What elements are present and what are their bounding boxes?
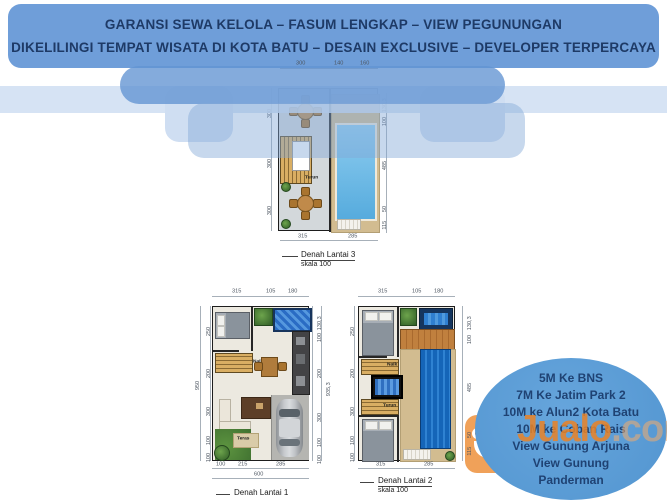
dim-label: 160 xyxy=(360,60,369,66)
kitchen-appliance xyxy=(296,376,305,386)
dim-label: 285 xyxy=(276,461,285,467)
dim-label: 115 xyxy=(467,447,473,456)
bush xyxy=(214,445,230,461)
dim-label: 200 xyxy=(350,369,356,378)
dining-table xyxy=(261,357,278,377)
pillow xyxy=(217,315,225,326)
dim-label: 180 xyxy=(434,288,443,294)
dim-label: 950 xyxy=(195,381,201,390)
banner-line-1: GARANSI SEWA KELOLA – FASUM LENGKAP – VI… xyxy=(8,13,659,36)
terrace-table-set xyxy=(291,189,319,217)
dimension-line xyxy=(212,296,309,297)
blanket xyxy=(363,323,393,355)
fish-pond xyxy=(273,308,312,332)
rug xyxy=(241,397,271,419)
stairs xyxy=(215,353,253,373)
dim-label: 115 xyxy=(382,221,388,230)
pool-lounger xyxy=(403,449,431,460)
medium-blue-band xyxy=(120,66,505,104)
callout-line: Panderman xyxy=(538,472,603,489)
wall xyxy=(359,356,387,358)
dim-label: 105 xyxy=(266,288,275,294)
scale-tick xyxy=(282,256,298,257)
dimension-line xyxy=(358,296,455,297)
dim-label: 600 xyxy=(254,471,263,477)
dim-label: 250 xyxy=(350,327,356,336)
callout-line: View Gunung xyxy=(533,455,609,472)
pillow xyxy=(365,421,378,430)
floorplan-lantai-2: 315 105 180 250 200 300 100 100 130,3 10… xyxy=(346,286,506,500)
scale-tick xyxy=(360,482,374,483)
callout-line: 7M Ke Jatim Park 2 xyxy=(516,387,625,404)
dim-label: 100 xyxy=(350,453,356,462)
car-rear-window xyxy=(279,439,300,446)
dim-label: 100 xyxy=(467,335,473,344)
plant xyxy=(281,182,291,192)
aquarium-water xyxy=(375,379,399,395)
banner-line-2: DIKELILINGI TEMPAT WISATA DI KOTA BATU –… xyxy=(8,36,659,59)
pillow xyxy=(379,312,392,321)
blanket xyxy=(363,431,393,461)
car xyxy=(276,399,303,457)
wall xyxy=(397,307,399,357)
dim-label: 100 xyxy=(317,455,323,464)
blanket xyxy=(226,313,249,338)
translucent-blue-band xyxy=(188,103,525,158)
round-table xyxy=(297,195,314,212)
pool-lounger xyxy=(337,219,361,230)
scale-tick xyxy=(216,494,230,495)
dim-label: 50 xyxy=(467,432,473,438)
dim-label: 300 xyxy=(296,60,305,66)
bed xyxy=(362,310,394,356)
listing-image: GARANSI SEWA KELOLA – FASUM LENGKAP – VI… xyxy=(0,0,667,500)
plan-title: Denah Lantai 1 xyxy=(234,488,288,497)
chair xyxy=(278,362,287,371)
dim-label: 130,3 xyxy=(317,316,323,330)
dim-label: 300 xyxy=(206,407,212,416)
dim-label: 215 xyxy=(238,461,247,467)
plan-scale: skala 100 xyxy=(301,261,331,268)
plant xyxy=(281,219,291,229)
plan-title: Denah Lantai 2 xyxy=(378,476,432,487)
stair-direction-label: Turun xyxy=(305,175,318,180)
dim-label: 180 xyxy=(288,288,297,294)
pillow xyxy=(217,326,225,337)
dimension-line xyxy=(462,306,463,461)
swimming-pool xyxy=(420,349,451,449)
dim-label: 485 xyxy=(382,161,388,170)
bed xyxy=(215,312,250,339)
dim-label: 100 xyxy=(317,438,323,447)
plan-title: Denah Lantai 3 xyxy=(301,250,355,261)
dim-label: 285 xyxy=(348,233,357,239)
dim-label: 315 xyxy=(232,288,241,294)
plant xyxy=(445,451,455,461)
dim-label: 200 xyxy=(206,369,212,378)
dim-label: 140 xyxy=(334,60,343,66)
stair-up-label: Naik xyxy=(387,362,397,367)
wall xyxy=(359,415,399,417)
kitchen-sink xyxy=(296,337,305,345)
car-roof xyxy=(279,419,300,437)
plan-body-lantai-1: Naik Teras xyxy=(212,306,309,461)
aquarium xyxy=(371,375,403,399)
bed xyxy=(362,419,394,462)
chair xyxy=(301,211,310,220)
dim-label: 315 xyxy=(298,233,307,239)
stove xyxy=(296,354,305,364)
chair xyxy=(254,362,263,371)
watermark-tld: .com xyxy=(611,408,667,450)
dim-label: 300 xyxy=(267,159,273,168)
dim-label: 105 xyxy=(412,288,421,294)
jacuzzi xyxy=(419,308,453,330)
dim-label: 300 xyxy=(267,206,273,215)
dim-label: 50 xyxy=(382,206,388,212)
watermark-brand: Jualo xyxy=(517,408,611,450)
car-windshield xyxy=(279,409,300,417)
dim-label: 100 xyxy=(206,436,212,445)
dim-label: 485 xyxy=(467,383,473,392)
pillow xyxy=(365,312,378,321)
floorplan-lantai-1: 315 105 180 250 200 300 100 100 950 130,… xyxy=(188,286,348,500)
plan-body-lantai-2: Naik Turun xyxy=(358,306,455,461)
dimension-line xyxy=(312,306,313,461)
wood-deck xyxy=(400,329,455,351)
dim-label: 315 xyxy=(376,461,385,467)
dim-label: 250 xyxy=(206,327,212,336)
jacuzzi-water xyxy=(424,313,448,325)
watermark-text: Jualo.com xyxy=(517,408,667,451)
dim-label: 130,3 xyxy=(467,316,473,330)
dimension-line xyxy=(212,478,309,479)
dimension-line xyxy=(280,240,378,241)
wall xyxy=(251,307,253,351)
dim-label: 315 xyxy=(378,288,387,294)
stair-down-label: Turun xyxy=(383,403,396,408)
decor xyxy=(246,402,254,408)
kitchen-counter xyxy=(292,331,310,395)
dim-label: 285 xyxy=(424,461,433,467)
dim-label: 100 xyxy=(350,436,356,445)
dim-label: 300 xyxy=(350,407,356,416)
wall xyxy=(213,350,239,352)
wall xyxy=(397,415,399,462)
callout-line: 5M Ke BNS xyxy=(539,370,603,387)
dim-label: 300 xyxy=(317,413,323,422)
plan-scale: skala 100 xyxy=(378,487,408,494)
dim-label: 100 xyxy=(317,333,323,342)
chair xyxy=(313,199,322,208)
dim-label: 935,3 xyxy=(326,382,332,396)
plant xyxy=(254,308,273,326)
dim-label: 100 xyxy=(206,453,212,462)
teras-label: Teras xyxy=(237,436,249,441)
pillow xyxy=(379,421,392,430)
coffee-table xyxy=(256,403,263,409)
dim-label: 200 xyxy=(317,369,323,378)
plant xyxy=(400,308,417,326)
dimension-line xyxy=(212,468,309,469)
dimension-line xyxy=(358,468,455,469)
dim-label: 100 xyxy=(216,461,225,467)
